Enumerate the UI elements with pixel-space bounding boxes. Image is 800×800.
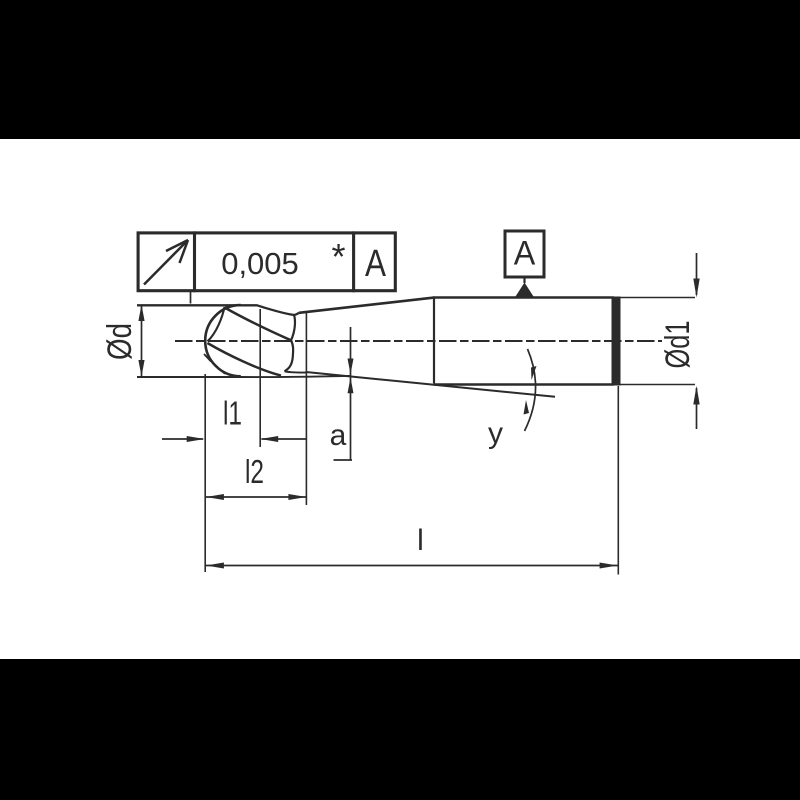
svg-text:l2: l2 <box>245 453 264 490</box>
svg-text:y: y <box>488 417 503 450</box>
svg-text:l: l <box>417 524 424 557</box>
svg-text:Ød: Ød <box>101 323 139 360</box>
svg-text:A: A <box>365 243 387 285</box>
svg-text:0,005: 0,005 <box>221 246 299 281</box>
svg-text:a: a <box>330 419 347 452</box>
svg-text:*: * <box>331 236 345 277</box>
svg-text:A: A <box>514 235 536 273</box>
svg-text:l1: l1 <box>223 395 242 432</box>
svg-text:Ød1: Ød1 <box>659 321 697 369</box>
